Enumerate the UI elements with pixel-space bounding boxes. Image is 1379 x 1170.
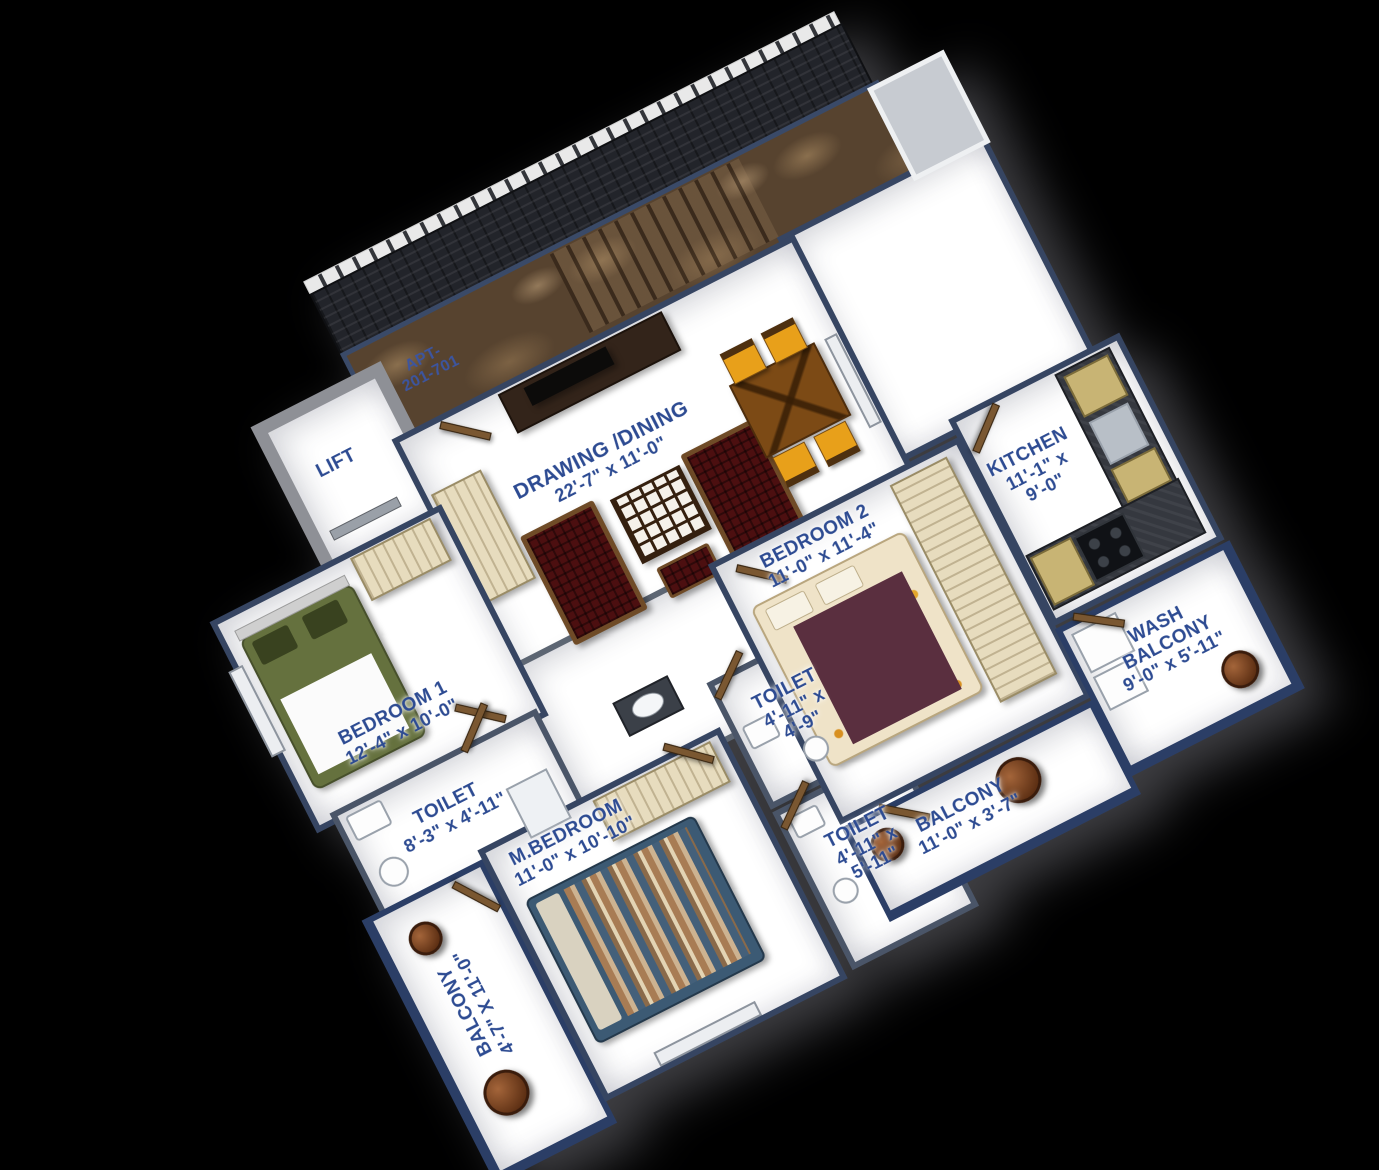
floor-plan: APT- 201-701 LIFT DRAWING /DINING 22'-7": [0, 0, 1379, 1170]
render-canvas: APT- 201-701 LIFT DRAWING /DINING 22'-7": [0, 0, 1379, 1170]
